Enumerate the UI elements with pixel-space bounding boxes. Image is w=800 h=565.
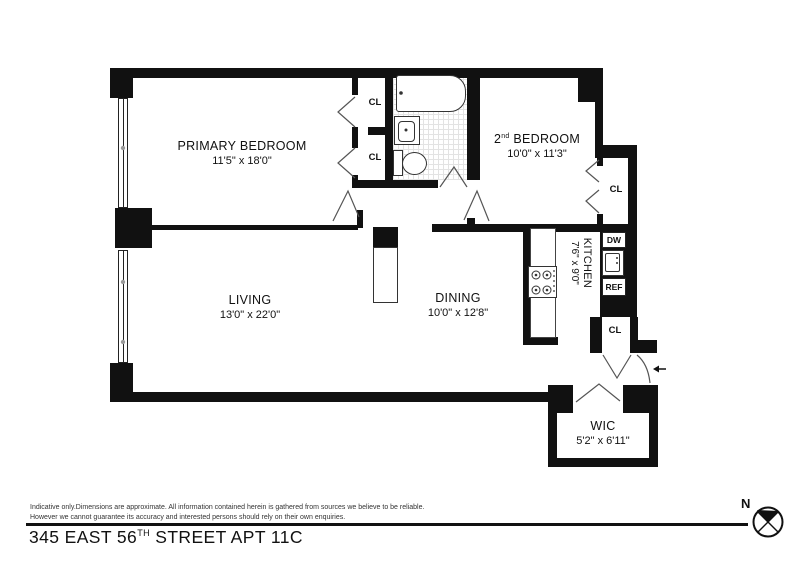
wall [548,385,573,413]
kitchen-dims: 7'6" x 9'0" [569,221,580,305]
wic-label: WIC 5'2" x 6'11" [553,419,653,447]
bathtub [396,75,466,112]
primary-bedroom-label: PRIMARY BEDROOM 11'5" x 18'0" [142,139,342,167]
door-swing-closet1 [338,97,355,127]
dining-room-label: DINING 10'0" x 12'8" [396,291,520,319]
dining-room-name: DINING [396,291,520,305]
wic-name: WIC [553,419,653,433]
entry-door-arc [637,355,650,383]
living-room-name: LIVING [150,293,350,307]
dining-room-dims: 10'0" x 12'8" [396,307,520,319]
closet-label-second-bedroom: CL [602,184,630,195]
disclaimer-line1: Indicative only.Dimensions are approxima… [30,503,430,513]
wall [373,227,398,247]
door-swing-primary-bedroom [333,191,359,221]
second-bedroom-dims: 10'0" x 11'3" [467,148,607,160]
window [118,98,128,208]
wall [150,225,358,230]
closet-label-primary-1: CL [361,97,389,108]
kitchen-sink-basin [605,253,620,272]
wall [115,208,152,248]
second-bedroom-name: 2nd BEDROOM [467,132,607,146]
kitchen-name: KITCHEN [581,221,593,305]
wall [597,214,603,224]
closet-label-hall: CL [601,325,629,336]
disclaimer: Indicative only.Dimensions are approxima… [30,503,430,522]
dishwasher-label: DW [607,235,621,245]
closet-label-primary-2: CL [361,152,389,163]
dishwasher: DW [602,232,626,248]
floorplan-canvas: DW REF PRIMARY BEDROOM 11'5" x 18'0" 2nd… [0,0,800,565]
wall [357,210,363,228]
window [118,250,128,363]
refrigerator-label: REF [606,282,623,292]
second-bedroom-label: 2nd BEDROOM 10'0" x 11'3" [467,132,607,160]
door-swing-wic [576,384,620,402]
stove [528,266,557,298]
living-room-label: LIVING 13'0" x 22'0" [150,293,350,321]
primary-bedroom-dims: 11'5" x 18'0" [142,155,342,167]
bathroom-sink-basin [398,121,415,142]
column [373,247,398,303]
door-swing-hall-closet [603,355,631,378]
wall [467,68,480,180]
wall [352,180,438,188]
wall [352,127,358,148]
address-title: 345 EAST 56TH STREET APT 11C [29,527,303,548]
door-swing-bed2-closet-bottom [586,190,599,213]
wic-dims: 5'2" x 6'11" [553,435,653,447]
primary-bedroom-name: PRIMARY BEDROOM [142,139,342,153]
north-label: N [741,496,750,511]
wall [117,392,548,402]
door-swing-second-bedroom [464,191,489,221]
footer-divider [26,523,748,526]
disclaimer-line2: However we cannot guarantee its accuracy… [30,513,430,523]
entry-arrow-icon [653,366,666,373]
kitchen-label: KITCHEN 7'6" x 9'0" [561,221,593,305]
wall [352,78,358,95]
wall [548,458,658,467]
wall [117,68,603,78]
living-room-dims: 13'0" x 22'0" [150,309,350,321]
wall [637,340,657,353]
refrigerator: REF [602,278,626,296]
wall [385,78,393,188]
wall [523,337,558,345]
toilet-bowl [402,152,427,175]
north-compass-icon [754,508,783,537]
